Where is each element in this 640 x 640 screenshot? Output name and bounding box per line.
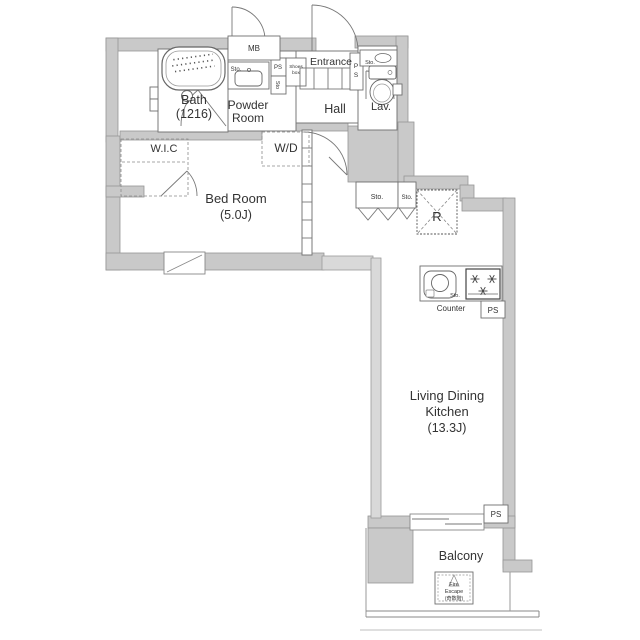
wall-right-stub: [503, 560, 532, 572]
ps-vertical-s: S: [354, 72, 359, 79]
ps-vertical-p: P: [354, 63, 358, 70]
floor-plan: MB Bath (1216) Sto. Powder Room PS Sto S…: [0, 0, 640, 640]
ldk-size-label: (13.3J): [428, 421, 467, 435]
ldk-label-1: Living Dining: [410, 388, 484, 403]
ps-label: PS: [488, 306, 499, 315]
wall-step-right: [462, 198, 506, 211]
bath-label: Bath: [181, 93, 207, 107]
fire-escape-label-3: (奇数階): [445, 595, 464, 602]
hall-label: Hall: [324, 102, 346, 116]
ldk-label-2: Kitchen: [425, 404, 468, 419]
wall-right-of-shaft: [398, 122, 414, 184]
powder-room-label-2: Room: [232, 111, 264, 125]
window-symbol: [410, 514, 484, 530]
paper-holder: [393, 84, 402, 95]
bedroom-label: Bed Room: [205, 191, 266, 206]
faucet-base: [426, 290, 434, 297]
floor-plan-svg: MB Bath (1216) Sto. Powder Room PS Sto S…: [0, 0, 640, 640]
refrigerator-label: R: [432, 209, 441, 224]
ps-label: PS: [274, 65, 282, 71]
partition-bedroom-corridor: [302, 130, 312, 255]
sto-label: Sto.: [450, 293, 460, 299]
wall-left-lower: [106, 136, 120, 270]
entrance-label: Entrance: [310, 56, 352, 68]
sto-label: Sto.: [371, 194, 384, 201]
wall-left-upper: [106, 38, 118, 142]
stove: [466, 269, 500, 299]
ps-label: PS: [491, 510, 502, 519]
shoes-box-label-2: box: [292, 70, 300, 76]
wall-balcony-left-block: [368, 528, 413, 583]
balcony-label: Balcony: [439, 549, 484, 563]
sto-label: Sto.: [231, 67, 242, 73]
bedroom-size-label: (5.0J): [220, 208, 252, 222]
wall-shaft-block: [348, 126, 398, 182]
counter-label: Counter: [437, 304, 466, 313]
wic-label: W.I.C: [151, 143, 178, 155]
sto-label: Sto: [274, 81, 280, 89]
shoes-box-label-1: Shoes: [289, 64, 303, 70]
wall-ldk-west: [371, 258, 381, 518]
bath-size-label: (1216): [176, 107, 212, 121]
bath-shelf: [150, 87, 158, 99]
wall-bedroom-south: [106, 253, 324, 270]
lavatory-label: Lav.: [371, 101, 391, 113]
powder-room-label-1: Powder: [228, 98, 269, 112]
sto-label: Sto.: [401, 194, 412, 201]
mb-label: MB: [248, 44, 260, 53]
bath-shelf: [150, 99, 158, 111]
wall-wic-jog: [106, 186, 144, 197]
fire-escape-label-2: Escape: [445, 589, 463, 595]
sto-label: Sto.: [365, 60, 375, 66]
wall-threshold: [322, 256, 373, 270]
vanity-sink: [235, 71, 262, 86]
fire-escape-label-1: Fire: [449, 582, 458, 588]
washer-dryer-label: W/D: [274, 141, 298, 155]
